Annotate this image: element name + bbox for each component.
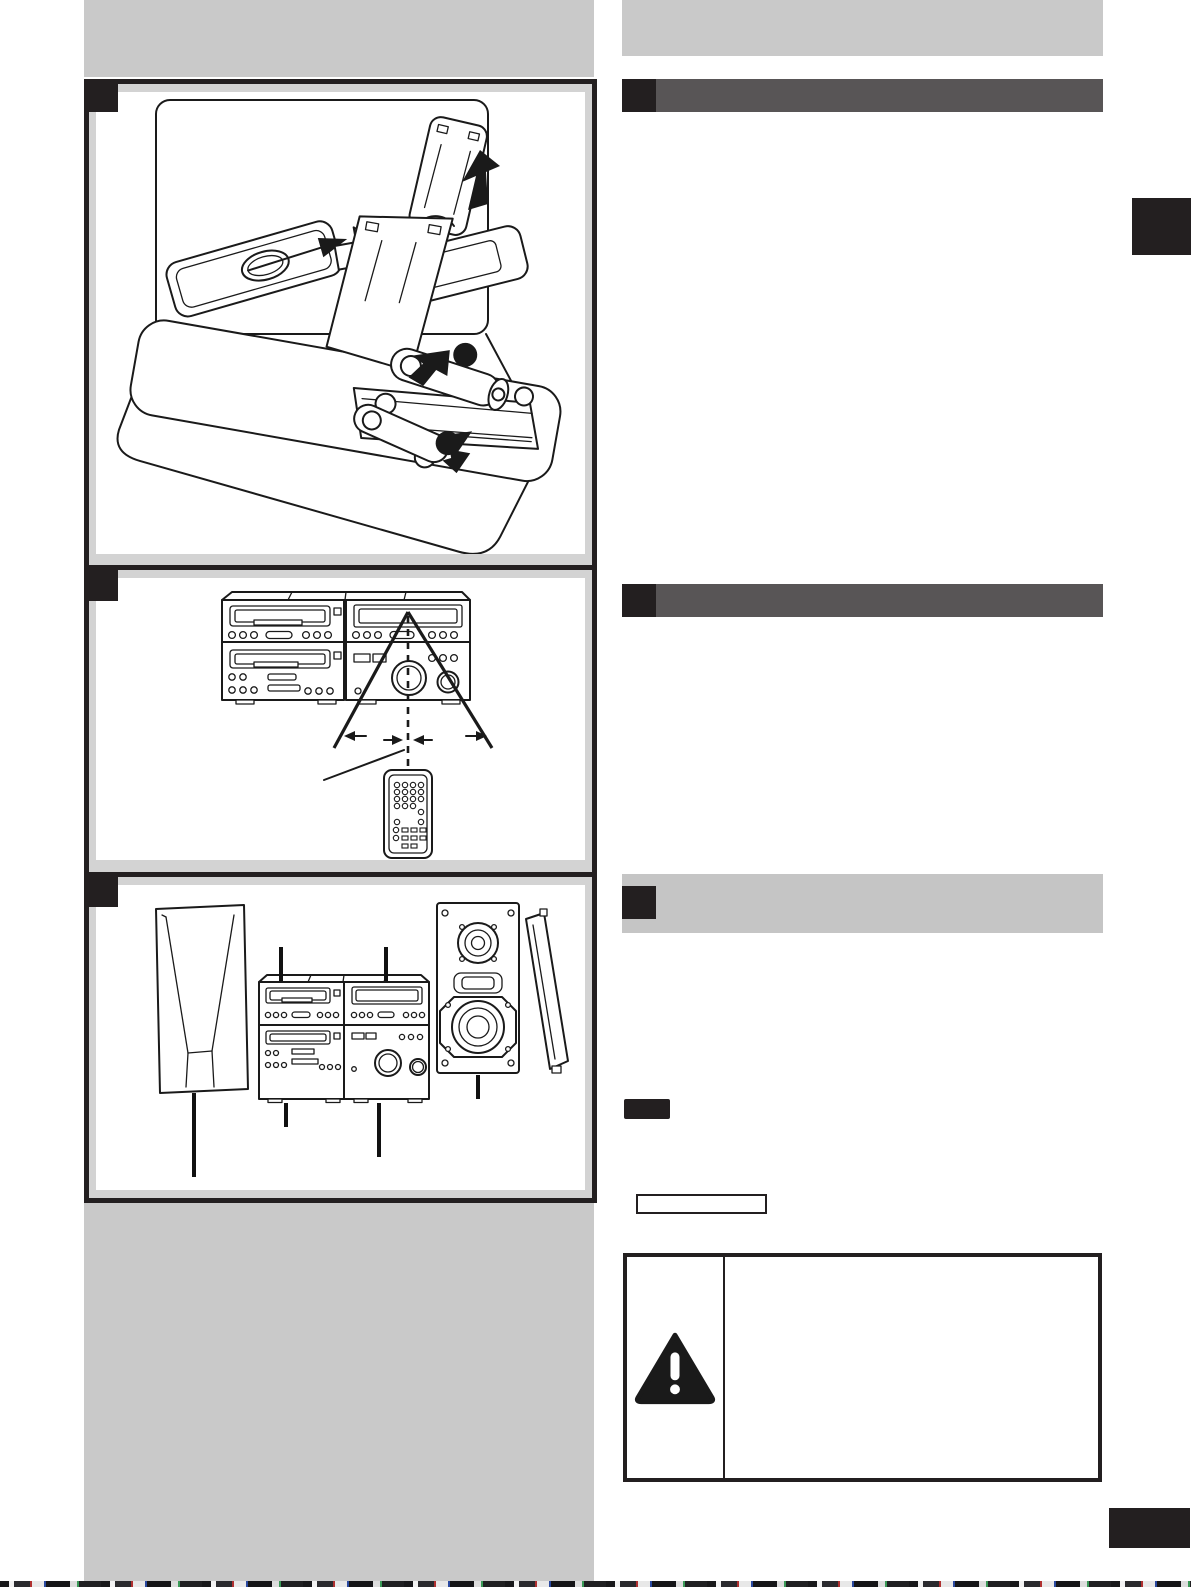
- figure-battery-installation: [96, 92, 585, 554]
- caution-icon-cell: [627, 1257, 725, 1478]
- caution-box: [623, 1253, 1102, 1482]
- warning-triangle-icon: [634, 1330, 716, 1406]
- section-heading-2: [656, 584, 1103, 617]
- note-badge: [624, 1099, 670, 1119]
- left-title-strip: [84, 0, 594, 77]
- bottom-page-tab: [1109, 1508, 1190, 1548]
- speaker-placement-drawing: [96, 885, 585, 1190]
- figure-remote-sensor-range: [96, 578, 585, 860]
- panel-divider-1: [89, 565, 592, 570]
- figure-marker-1: [84, 79, 118, 112]
- section-marker-3: [622, 886, 656, 919]
- panel-divider-2: [89, 872, 592, 877]
- section-header-2: [622, 584, 1103, 617]
- left-column-lower-fill: [84, 1203, 594, 1581]
- figure-panel: [84, 79, 597, 1203]
- section-marker-2: [622, 584, 656, 617]
- side-page-tab: [1132, 198, 1191, 255]
- figure-speaker-placement: [96, 885, 585, 1190]
- battery-installation-drawing: [96, 92, 585, 554]
- section-header-1: [622, 79, 1103, 112]
- figure-marker-3: [84, 872, 118, 907]
- section-header-3: [622, 874, 1103, 933]
- section-marker-1: [622, 79, 656, 112]
- reference-box: [636, 1194, 767, 1214]
- right-title-strip: [622, 0, 1103, 56]
- scan-edge-noise: [0, 1581, 1191, 1587]
- manual-page: [0, 0, 1191, 1587]
- section-heading-1: [656, 79, 1103, 112]
- remote-sensor-drawing: [96, 578, 585, 860]
- caution-text-cell: [725, 1257, 1098, 1478]
- figure-marker-2: [84, 565, 118, 601]
